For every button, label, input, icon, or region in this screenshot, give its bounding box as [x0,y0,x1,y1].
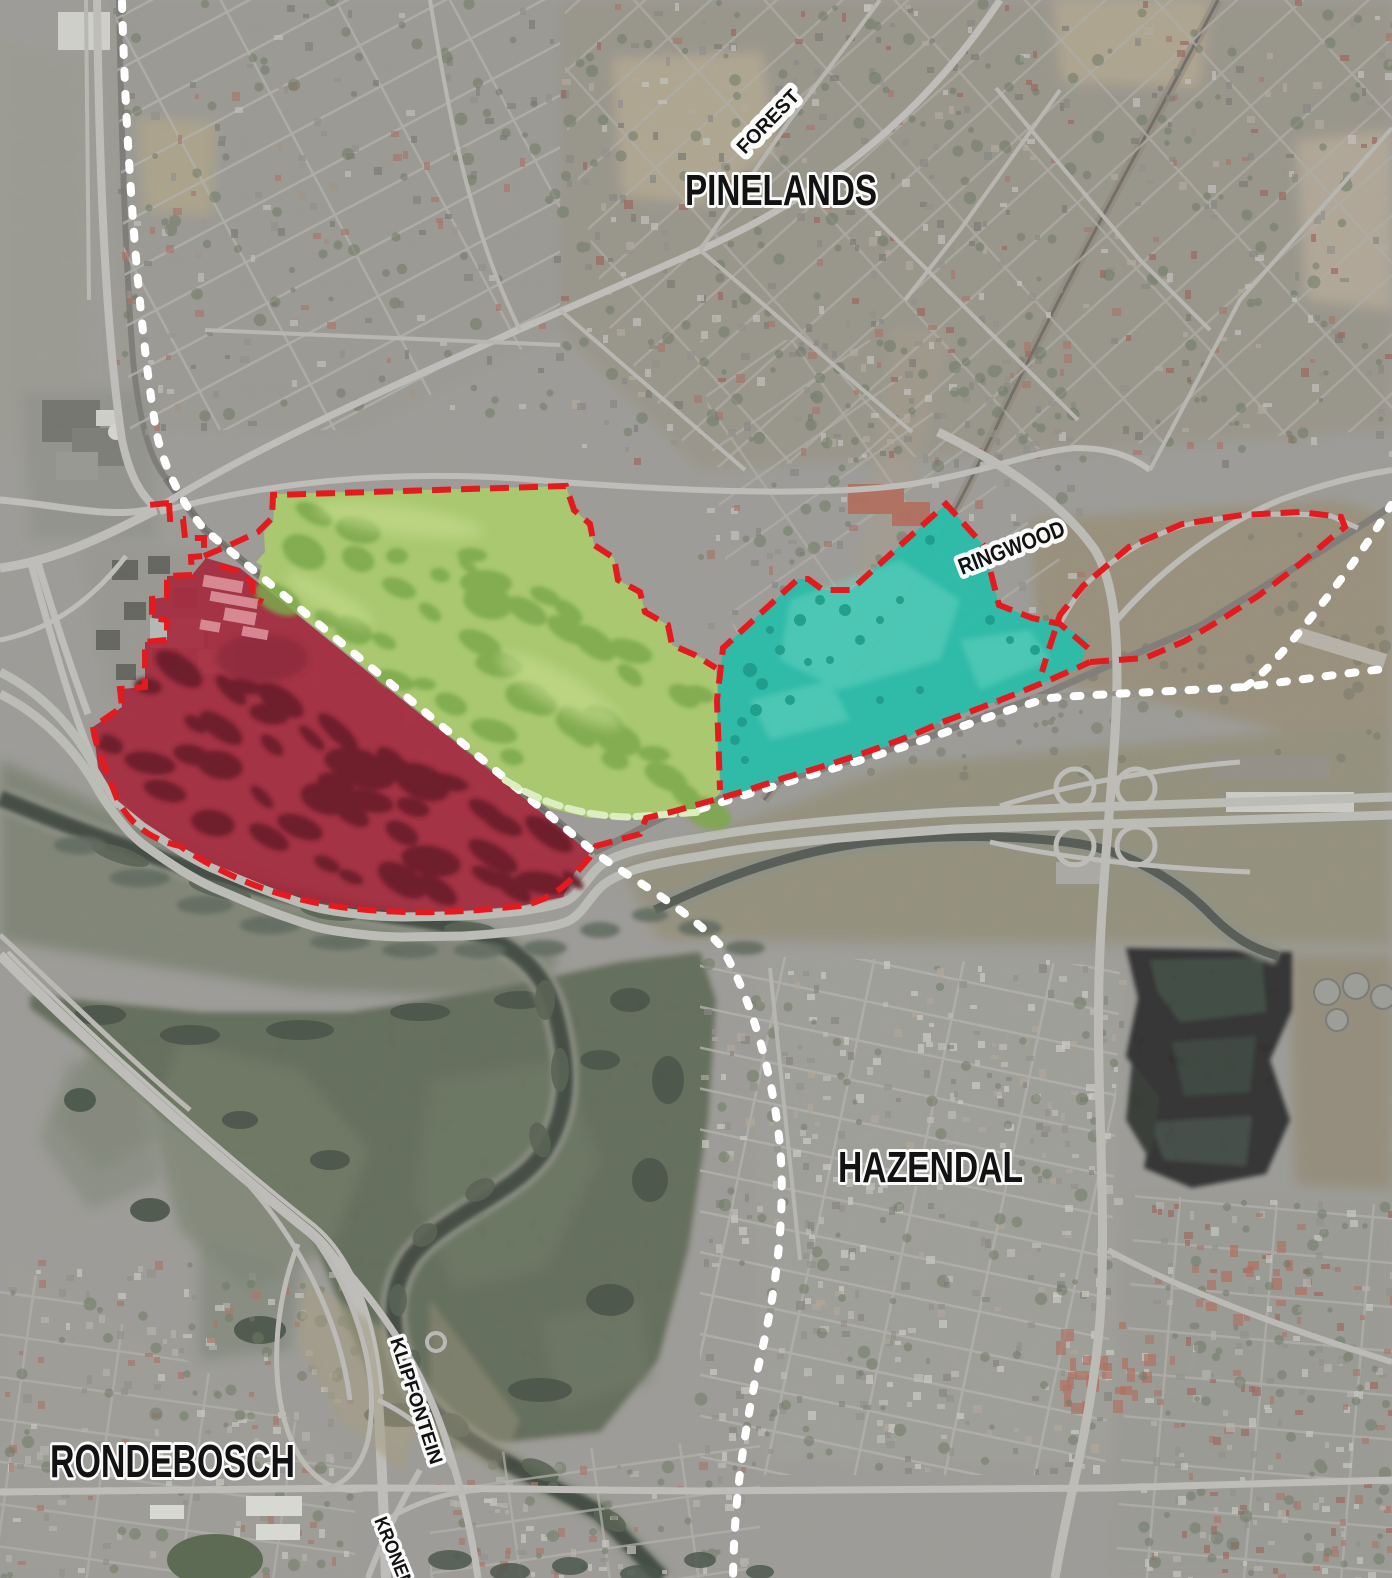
svg-text:PINELANDS: PINELANDS [685,166,877,215]
svg-text:RONDEBOSCH: RONDEBOSCH [50,1435,295,1487]
svg-text:HAZENDAL: HAZENDAL [838,1143,1023,1192]
